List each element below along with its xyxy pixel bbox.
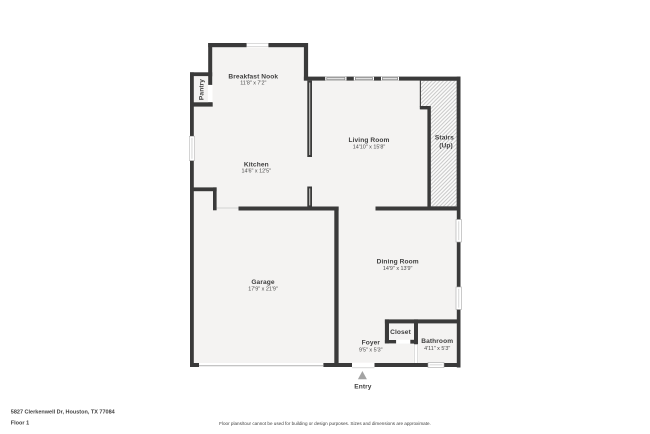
svg-text:11'8" x 7'2": 11'8" x 7'2" — [240, 81, 266, 87]
svg-text:14'6" x 12'5": 14'6" x 12'5" — [242, 168, 272, 174]
svg-text:Stairs: Stairs — [435, 135, 454, 142]
svg-text:9'5" x 5'3": 9'5" x 5'3" — [359, 347, 383, 353]
svg-text:Kitchen: Kitchen — [244, 161, 269, 168]
svg-text:5827 Clerkenwell Dr, Houston,: 5827 Clerkenwell Dr, Houston, TX 77084 — [11, 410, 116, 416]
svg-text:Garage: Garage — [251, 279, 275, 286]
svg-text:Living Room: Living Room — [348, 137, 389, 144]
svg-text:Floor 1: Floor 1 — [11, 421, 29, 427]
svg-text:Closet: Closet — [390, 329, 411, 336]
svg-text:Foyer: Foyer — [362, 340, 381, 347]
svg-text:Bathroom: Bathroom — [421, 338, 453, 345]
svg-text:17'9" x 21'9": 17'9" x 21'9" — [248, 287, 278, 293]
svg-text:Pantry: Pantry — [198, 79, 205, 100]
svg-text:Entry: Entry — [354, 383, 372, 390]
svg-text:Floor plans/tour cannot be use: Floor plans/tour cannot be used for buil… — [219, 421, 431, 426]
svg-text:14'9" x 13'9": 14'9" x 13'9" — [383, 266, 413, 272]
svg-text:(Up): (Up) — [439, 142, 453, 149]
svg-text:4'11" x 5'3": 4'11" x 5'3" — [424, 346, 450, 352]
svg-text:Dining Room: Dining Room — [377, 258, 419, 265]
svg-text:14'10" x 15'8": 14'10" x 15'8" — [353, 145, 386, 151]
